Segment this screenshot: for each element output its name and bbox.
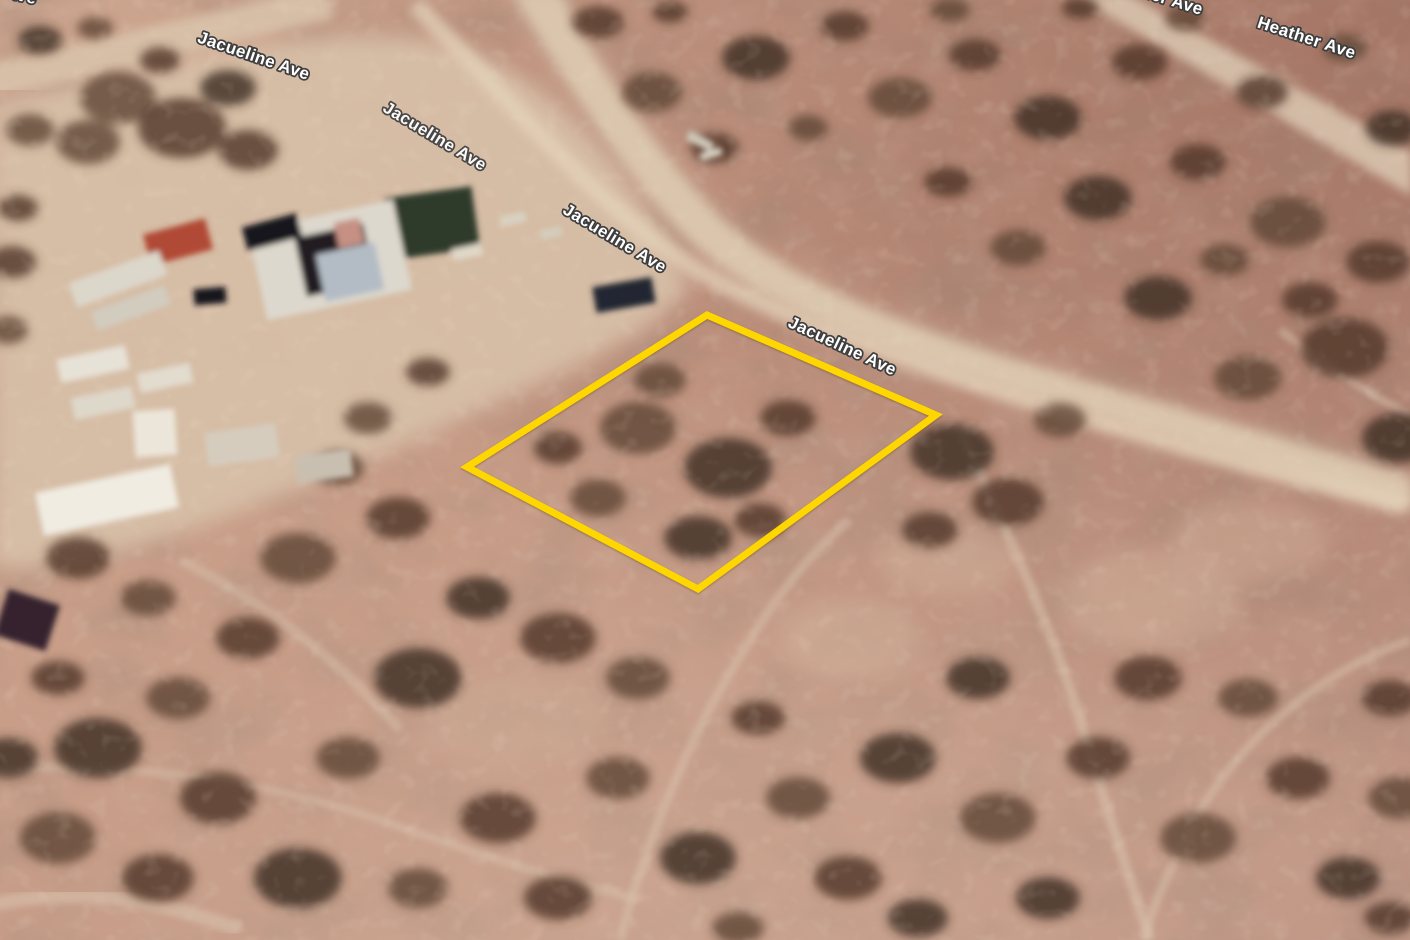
map-canvas[interactable]: Jacueline Ave Jacueline Ave Jacueline Av… [0,0,1410,940]
aerial-terrain [0,0,1410,940]
main-house-pink-section [334,218,365,249]
aerial-map-view: Jacueline Ave Jacueline Ave Jacueline Av… [0,0,1410,940]
dark-vehicle-2 [193,287,226,306]
white-shed [132,409,177,458]
